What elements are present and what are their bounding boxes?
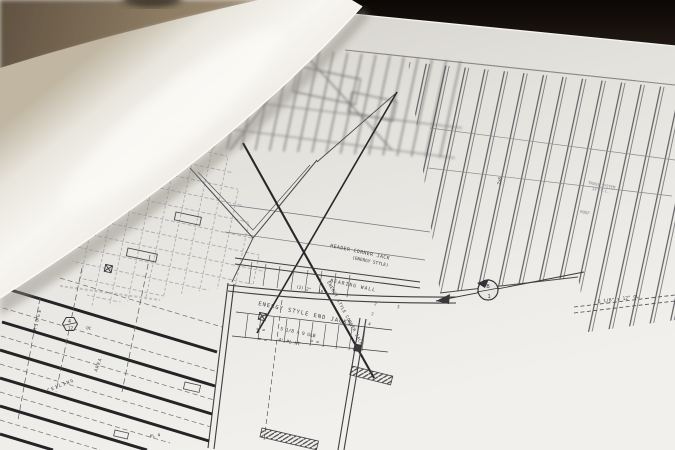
pitch-run: 12 <box>68 326 74 332</box>
blueprint-photo-scene: B 1 <box>0 0 675 450</box>
section-number: 1 <box>487 294 490 300</box>
pitch-rise: 4 <box>68 319 71 325</box>
blueprint-drawing: B 1 <box>0 0 675 450</box>
